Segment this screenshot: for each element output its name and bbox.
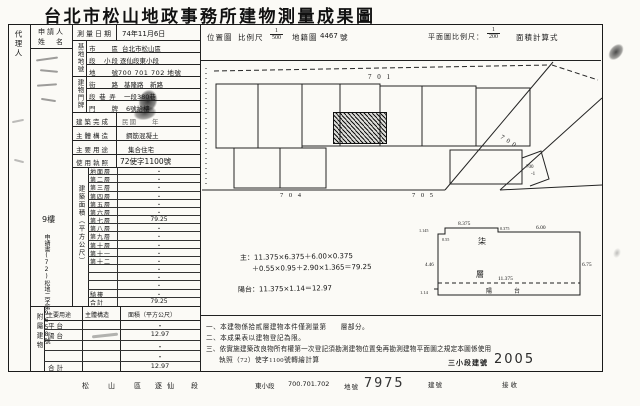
- floor-value: ・: [118, 257, 200, 264]
- floor-row: 第三層 ・: [88, 183, 200, 191]
- floor-row: 地面層 ・: [88, 167, 200, 175]
- floor-row: 第五層 ・: [88, 200, 200, 208]
- applicant-label-2: 姓 名: [38, 37, 65, 47]
- floor-label: 第八層: [88, 224, 118, 231]
- boundary-dashed-line: [552, 65, 598, 80]
- annex-area: ・: [120, 351, 200, 360]
- ink-stamp: [602, 38, 630, 67]
- cell-border: [86, 40, 87, 76]
- license-label: 使用執照: [76, 157, 110, 167]
- dim-top-right: 6.00: [536, 225, 546, 231]
- calc-title: 面積計算式: [516, 32, 559, 43]
- floor-row: 第四層 ・: [88, 192, 200, 200]
- annex-row: 合計 12.97: [44, 362, 200, 372]
- floor-row: 第二層 ・: [88, 175, 200, 183]
- floor-label: 第五層: [88, 200, 118, 207]
- building-outline: [216, 84, 302, 148]
- floor-plan-drawing: 8.375 0.375 6.00 6.75 1.145 0.55 4.46 11…: [418, 198, 604, 310]
- building-number-stamp: 2005: [494, 352, 535, 367]
- annex-structure: [82, 320, 120, 329]
- cell-border: [72, 40, 200, 41]
- floor-label: [88, 281, 118, 288]
- floor-value: ・: [118, 167, 200, 174]
- annex-row: 平台 ・: [44, 320, 200, 330]
- floor-row: 騎樓 ・: [88, 290, 200, 298]
- structure-label: 主體構造: [76, 130, 110, 140]
- annex-row: 陽台 12.97: [44, 330, 200, 340]
- dim-notch: 0.375: [500, 226, 509, 231]
- cell-border: [116, 126, 117, 140]
- annex-row: ・: [44, 351, 200, 361]
- annex-structure: [82, 351, 120, 360]
- floor-area-table: 地面層 ・ 第二層 ・ 第三層 ・ 第四層 ・ 第五層 ・: [88, 167, 200, 306]
- floor-row: 第十二層 ・: [88, 257, 200, 265]
- built-label: 建築完成: [76, 116, 110, 126]
- structure-value: 鋼筋混凝土: [126, 130, 159, 140]
- annex-area: 12.97: [120, 362, 200, 372]
- dim-bottom-inner: 11.375: [498, 276, 513, 282]
- annex-header-3: 面積（平方公尺）: [128, 310, 176, 319]
- dim-top-left: 8.375: [458, 221, 471, 227]
- building-outline: [450, 150, 522, 184]
- annex-row: ・: [44, 341, 200, 351]
- floor-row: ・: [88, 273, 200, 281]
- dim-left-mid: 4.46: [425, 263, 434, 268]
- scale-denominator: 500: [270, 35, 283, 41]
- floor-value: ・: [118, 241, 200, 248]
- floor-value: 79.25: [118, 216, 200, 223]
- balcony-char-1: 陽: [486, 287, 492, 295]
- area-group-label: 建築面積（平方公尺）: [75, 185, 85, 303]
- cell-border: [30, 306, 200, 307]
- floor-label: 第六層: [88, 208, 118, 215]
- plan-scale-numerator: 1: [487, 27, 500, 34]
- ink-stamp: [610, 245, 624, 262]
- footer-section: 逐仙 段: [155, 381, 203, 391]
- calc-line-1: 主：11.375×6.375＋6.00×0.375: [240, 251, 353, 263]
- dim-right: 6.75: [582, 262, 592, 268]
- annex-header-1: 主要用途: [47, 310, 71, 319]
- road-line: [500, 185, 602, 190]
- cell-border: [72, 154, 200, 155]
- divider: [30, 24, 31, 372]
- floor-value: ・: [118, 249, 200, 256]
- floor-label: [88, 273, 118, 280]
- agent-label: 代理人: [13, 30, 24, 59]
- cell-border: [86, 76, 87, 112]
- dim-left-top: 1.145: [419, 228, 428, 233]
- annex-structure: [82, 362, 120, 372]
- annex-area: ・: [120, 341, 200, 350]
- annex-structure: [82, 341, 120, 350]
- cell-border: [30, 48, 72, 49]
- dim-left-small: 0.55: [442, 237, 449, 242]
- boundary-dashed-line: [214, 65, 550, 71]
- building-outline: [380, 86, 476, 146]
- cell-border: [86, 52, 200, 53]
- floor-row: ・: [88, 281, 200, 289]
- floor-label: 第四層: [88, 192, 118, 199]
- cell-border: [86, 64, 200, 65]
- floor-label: [88, 265, 118, 272]
- unit-floor-char-top: 柒: [478, 236, 486, 246]
- note-3: 三、依實施建築改良物所有權第一次登記須勘測建物位置免再勘測建物平面圖之規定本圖係…: [206, 343, 491, 353]
- location-map-label: 位置圖: [207, 32, 233, 43]
- cell-border: [116, 24, 117, 40]
- parcel-label-700-1b: -1: [531, 172, 536, 177]
- annex-use: 合計: [44, 362, 82, 372]
- floor-label: 第十層: [88, 241, 118, 248]
- floor-row: 第七層 79.25: [88, 216, 200, 224]
- balcony-char-2: 台: [514, 287, 520, 295]
- building-number-label: 三小段建號: [448, 358, 488, 368]
- scanned-survey-sheet: 台北市松山地政事務所建物測量成果圖 代理人 申請人 姓 名 9樓 申請書(72)…: [0, 0, 640, 406]
- applicant-floor-note: 9樓: [42, 214, 55, 225]
- floor-label: 地面層: [88, 167, 118, 174]
- annex-header-2: 主體構造: [85, 310, 109, 319]
- floor-row: 第十一層 ・: [88, 249, 200, 257]
- cell-border: [72, 140, 200, 141]
- floor-label: 第九層: [88, 232, 118, 239]
- site-group-label: 基地地號: [74, 43, 84, 73]
- floor-value: 79.25: [118, 298, 200, 306]
- site-plan-drawing: 7 0 1 7 0 0 700 -1 7 0 4 7 0 5: [200, 58, 604, 198]
- floor-label: 合計: [88, 298, 118, 306]
- floor-label: 第七層: [88, 216, 118, 223]
- floor-value: ・: [118, 290, 200, 297]
- floor-value: ・: [118, 192, 200, 199]
- footer-building-unit: 建號: [428, 379, 443, 389]
- dim-balcony: 1.14: [420, 290, 429, 295]
- scale-label: 比例尺: [238, 32, 264, 43]
- floor-row: 第六層 ・: [88, 208, 200, 216]
- floor-row: 第八層 ・: [88, 224, 200, 232]
- divider: [200, 315, 601, 316]
- annex-use: [44, 351, 82, 360]
- note-2: 二、本成果表以建物登記為限。: [206, 332, 305, 342]
- cadastre-unit: 號: [340, 32, 349, 43]
- floor-label: 第十一層: [88, 249, 118, 256]
- footer-parcels: 700.701.702: [288, 380, 329, 388]
- subject-building-hatched: [333, 112, 387, 144]
- cell-border: [116, 154, 117, 167]
- location-scale-fraction: 1 500: [270, 28, 283, 41]
- parcel-label-700-1a: 700: [526, 165, 534, 170]
- cell-border: [72, 76, 200, 77]
- annex-table: 平台 ・ 陽台 12.97 ・ ・ 合計: [44, 320, 200, 372]
- floor-label: 第三層: [88, 183, 118, 190]
- annex-group-label: 附屬建物: [33, 313, 43, 351]
- floor-value: ・: [118, 224, 200, 231]
- road-edge: [445, 62, 553, 190]
- footer-parcel-unit: 地號: [344, 381, 359, 391]
- plan-scale-fraction: 1 200: [487, 27, 500, 40]
- footer-subsection: 東小段: [255, 380, 275, 390]
- plan-scale-denominator: 200: [487, 34, 500, 40]
- survey-date-label: 測量日期: [77, 29, 113, 39]
- footer-building-number: 7975: [364, 375, 405, 391]
- calc-line-2: ＋0.55×0.95＋2.90×1.365＝79.25: [252, 262, 372, 274]
- note-4: 執照（72）使字1100號轉繪計算: [219, 354, 320, 364]
- use-label: 主要用途: [76, 144, 110, 154]
- annex-area: 12.97: [120, 330, 200, 339]
- parcel-label-700: 7 0 0: [499, 134, 518, 149]
- door-group-label: 建物門牌: [74, 79, 84, 109]
- annex-use: 陽台: [44, 330, 82, 339]
- cell-border: [116, 140, 117, 154]
- floor-row: ・: [88, 265, 200, 273]
- unit-floor-char-bottom: 層: [476, 270, 484, 279]
- scale-numerator: 1: [270, 28, 283, 35]
- cadastre-label: 地籍圖: [292, 32, 318, 43]
- floor-value: ・: [118, 232, 200, 239]
- floor-value: ・: [118, 265, 200, 272]
- footer-received-label: 接收: [502, 379, 519, 389]
- applicant-label-1: 申請人: [38, 27, 65, 37]
- use-value: 集合住宅: [128, 144, 154, 154]
- annex-area: ・: [120, 320, 200, 329]
- floor-label: 第二層: [88, 175, 118, 182]
- cell-border: [116, 112, 117, 126]
- unit-outline: [438, 228, 580, 295]
- floor-label: 第十二層: [88, 257, 118, 264]
- floor-row: 第九層 ・: [88, 232, 200, 240]
- cadastre-number: 4467: [320, 32, 338, 40]
- floor-value: ・: [118, 208, 200, 215]
- floor-value: ・: [118, 281, 200, 288]
- divider: [72, 24, 73, 306]
- floor-row: 合計 79.25: [88, 298, 200, 306]
- floor-value: ・: [118, 175, 200, 182]
- plan-scale-label: 平面圖比例尺：: [428, 32, 484, 42]
- note-1: 一、本建物係拾貳層建物本件僅測量第 層部分。: [206, 321, 369, 331]
- parcel-label-704: 7 0 4: [280, 192, 303, 198]
- survey-date-value: 74年11月6日: [122, 29, 165, 39]
- floor-label: 騎樓: [88, 290, 118, 297]
- floor-row: 第十層 ・: [88, 241, 200, 249]
- floor-value: ・: [118, 200, 200, 207]
- annex-use: 平台: [44, 320, 82, 329]
- parcel-label-701: 7 0 1: [368, 73, 392, 81]
- cell-border: [72, 126, 200, 127]
- annex-use: [44, 341, 82, 350]
- footer-district: 松 山 區: [82, 381, 147, 391]
- calc-line-3: 陽台：11.375×1.14＝12.97: [238, 283, 332, 295]
- floor-value: ・: [118, 183, 200, 190]
- floor-value: ・: [118, 273, 200, 280]
- license-value: 72使字1100號: [120, 156, 171, 167]
